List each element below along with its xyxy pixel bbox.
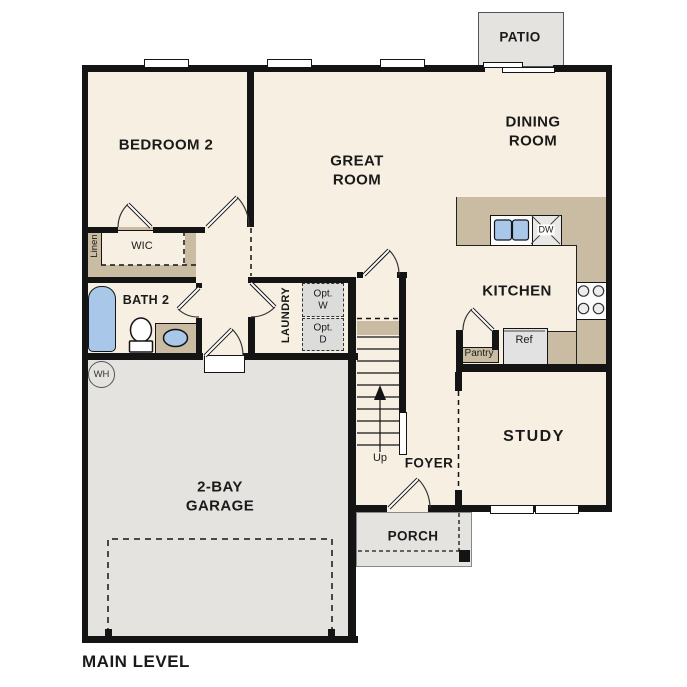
window-greatroom-2 xyxy=(380,59,425,68)
window-study-2 xyxy=(535,505,579,514)
label-laundry: LAUNDRY xyxy=(280,287,294,343)
range-stove xyxy=(576,282,608,320)
label-opt-dryer: Opt. D xyxy=(314,323,333,346)
wall-closet-top-a xyxy=(357,272,363,278)
garage-entry-step xyxy=(204,355,245,373)
counter-right-lower xyxy=(576,318,607,364)
wall-laundry-west-b xyxy=(248,317,255,353)
label-up: Up xyxy=(373,452,387,466)
label-kitchen: KITCHEN xyxy=(482,283,551,302)
wall-bath-east-b xyxy=(196,318,202,353)
wall-garage-bottom xyxy=(82,636,358,643)
wall-study-west-b xyxy=(455,490,462,512)
wall-garage-top-b xyxy=(243,353,358,360)
wall-bedroom-south-b xyxy=(153,227,205,233)
window-study-1 xyxy=(490,505,534,514)
label-opt-washer: Opt. W xyxy=(314,289,333,312)
wall-laundry-north xyxy=(248,277,355,283)
closet-shelf xyxy=(357,321,399,335)
label-porch: PORCH xyxy=(388,529,439,546)
plan-title: MAIN LEVEL xyxy=(82,651,190,672)
label-dining-room: DINING ROOM xyxy=(506,113,561,151)
label-ref: Ref xyxy=(515,334,532,348)
label-linen: Linen xyxy=(89,234,101,257)
label-patio: PATIO xyxy=(499,30,540,47)
window-greatroom-1 xyxy=(267,59,312,68)
label-bath2: BATH 2 xyxy=(123,293,170,309)
label-dishwasher: DW xyxy=(538,224,555,235)
window-bedroom xyxy=(144,59,189,68)
floor-plan: WH xyxy=(0,0,687,687)
patio-slider-panel-2 xyxy=(502,67,555,73)
label-foyer: FOYER xyxy=(405,456,454,473)
wall-stair-east xyxy=(399,272,406,412)
bathtub xyxy=(88,286,116,352)
label-great-room: GREAT ROOM xyxy=(330,152,383,190)
label-garage: 2-BAY GARAGE xyxy=(186,478,254,516)
water-heater-circle: WH xyxy=(88,361,115,388)
wall-kitchen-south xyxy=(456,364,612,372)
wall-top-right xyxy=(553,65,612,72)
label-wic: WIC xyxy=(131,240,152,254)
wall-right-exterior xyxy=(606,65,612,512)
kitchen-sink-box xyxy=(490,215,533,246)
counter-right-upper xyxy=(576,245,607,282)
label-pantry: Pantry xyxy=(465,348,494,361)
wall-garage-top-a xyxy=(82,353,203,360)
label-bedroom2: BEDROOM 2 xyxy=(119,137,213,156)
counter-by-ref xyxy=(546,331,576,365)
wall-bath-north xyxy=(82,277,196,283)
label-study: STUDY xyxy=(503,427,565,447)
stair-handrail xyxy=(399,412,407,455)
water-heater-label: WH xyxy=(94,369,110,381)
wall-study-west-a xyxy=(455,372,462,391)
wall-bath-east-a xyxy=(196,283,202,288)
wall-garage-right xyxy=(348,277,356,643)
wall-bedroom-south-a xyxy=(82,227,118,233)
wall-pantry-west xyxy=(456,330,463,372)
wall-bedroom-greatroom xyxy=(247,65,254,227)
vanity-counter xyxy=(155,323,198,355)
